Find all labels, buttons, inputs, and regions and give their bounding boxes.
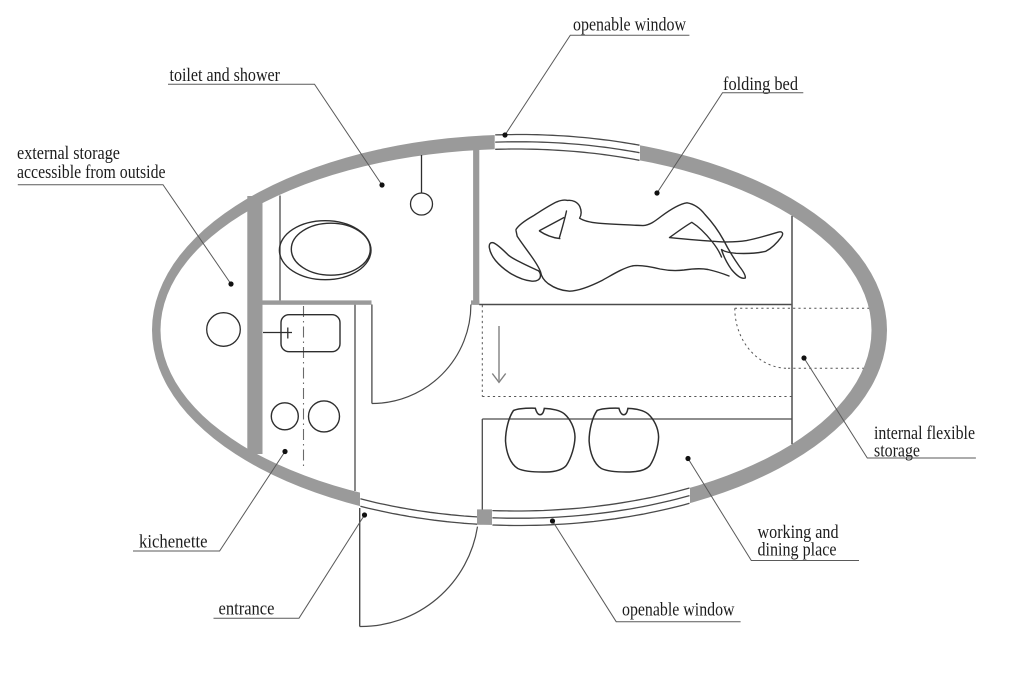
svg-text:kichenette: kichenette bbox=[139, 533, 208, 553]
svg-text:entrance: entrance bbox=[219, 600, 275, 620]
svg-text:folding bed: folding bed bbox=[723, 75, 799, 95]
svg-text:toilet and shower: toilet and shower bbox=[170, 66, 281, 86]
svg-text:external storage: external storage bbox=[17, 144, 120, 164]
svg-text:dining place: dining place bbox=[758, 541, 837, 561]
svg-text:accessible from outside: accessible from outside bbox=[17, 163, 166, 183]
svg-text:openable window: openable window bbox=[573, 16, 687, 36]
svg-text:openable window: openable window bbox=[622, 601, 735, 621]
